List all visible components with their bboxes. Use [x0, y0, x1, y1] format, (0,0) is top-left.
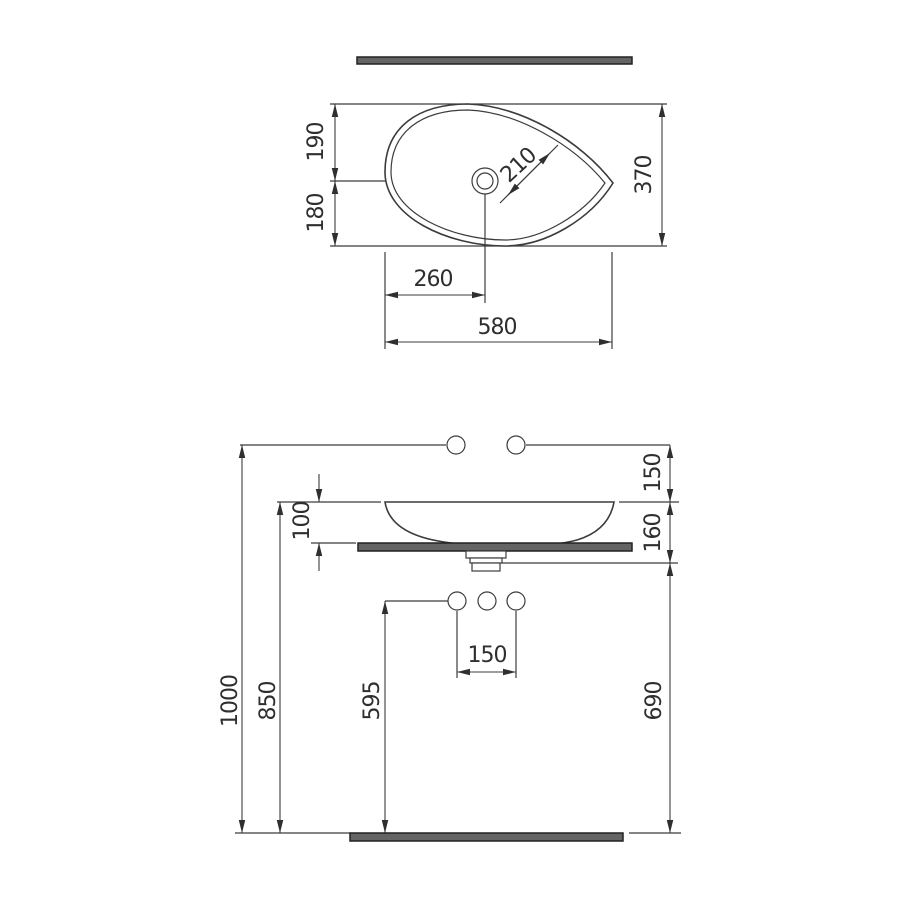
shelf-bar-top-view [357, 57, 632, 64]
supply-hole-right [507, 592, 525, 610]
drain-collar [470, 558, 502, 563]
dim-label-supply-spacing: 150 [468, 643, 507, 668]
basin-dimension-drawing: 190 180 370 210 260 580 [0, 0, 900, 900]
top-view: 190 180 370 210 260 580 [304, 57, 667, 349]
countertop-bar [358, 543, 632, 551]
drawing-canvas: 190 180 370 210 260 580 [0, 0, 900, 900]
floor-bar [350, 833, 623, 841]
dim-label-rim-to-trap: 160 [641, 514, 666, 553]
wall-faucet-hole-left [447, 436, 465, 454]
front-view: 150 100 160 1000 850 595 690 150 [218, 436, 681, 841]
dim-label-total-depth: 370 [632, 156, 657, 195]
dim-label-basin-height: 100 [290, 502, 315, 541]
drain-flange [466, 551, 506, 558]
dim-label-supply-height: 595 [360, 682, 385, 721]
dim-label-front-depth: 190 [304, 123, 329, 162]
dim-label-outlet-height: 690 [642, 682, 667, 721]
dim-label-back-depth: 180 [304, 194, 329, 233]
dim-label-total-height: 1000 [218, 675, 243, 727]
supply-hole-left [448, 592, 466, 610]
dim-label-total-width: 580 [478, 315, 517, 340]
dim-label-rim-height: 850 [256, 682, 281, 721]
wall-faucet-hole-right [507, 436, 525, 454]
basin-side-profile [385, 502, 614, 546]
drain-tailpiece [472, 563, 500, 571]
dim-label-drain-offset-x: 260 [414, 267, 453, 292]
dim-label-faucet-above-rim: 150 [641, 454, 666, 493]
supply-hole-center [478, 592, 496, 610]
drain-hole-inner [477, 173, 493, 189]
